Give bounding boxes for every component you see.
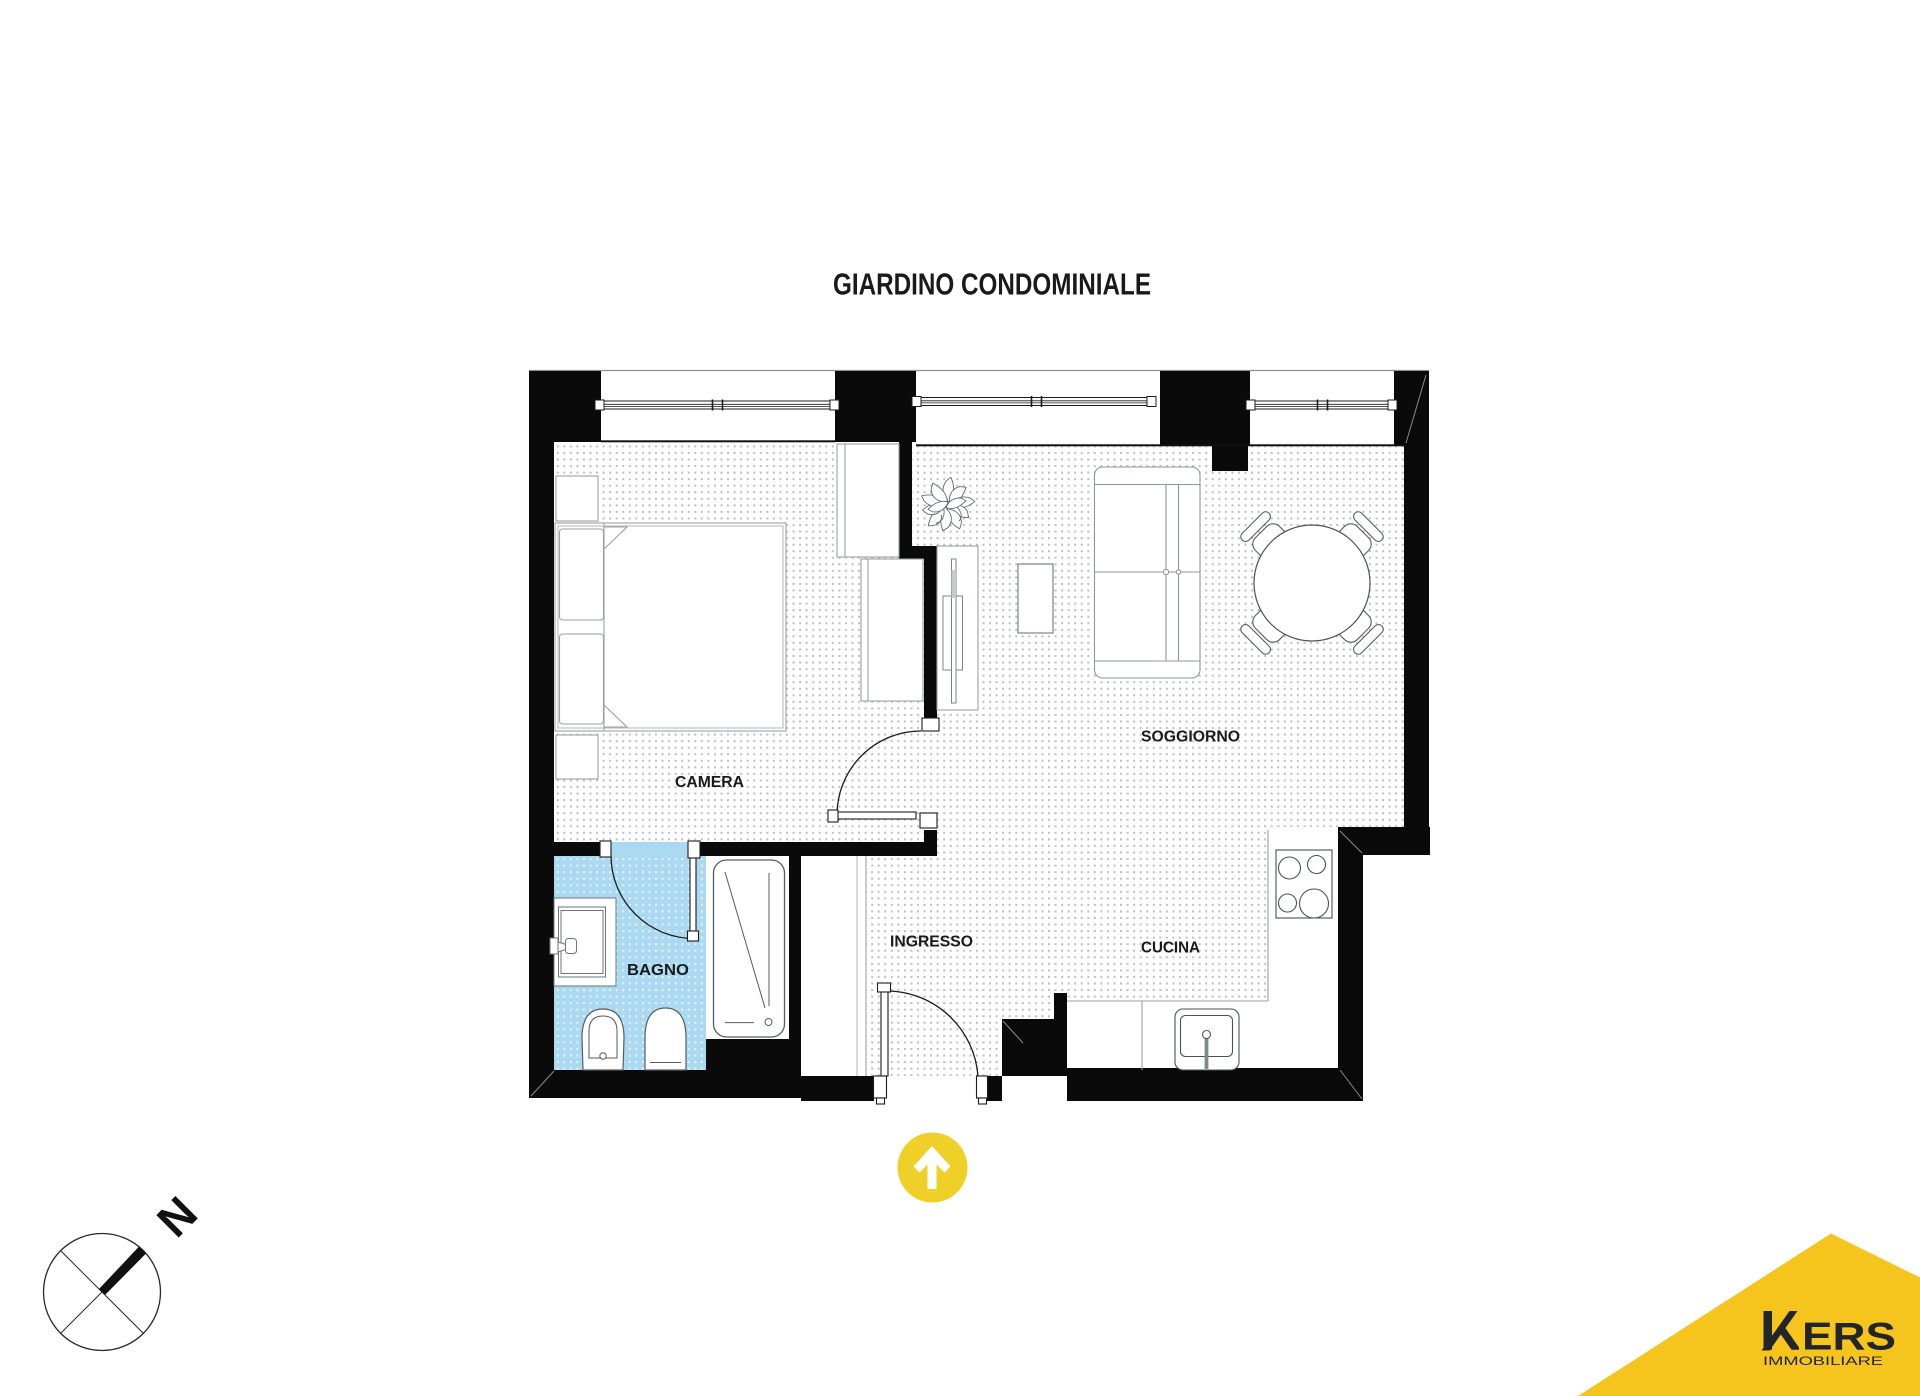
svg-text:CUCINA: CUCINA: [1141, 940, 1200, 957]
svg-text:INGRESSO: INGRESSO: [890, 934, 973, 951]
svg-text:GIARDINO CONDOMINIALE: GIARDINO CONDOMINIALE: [833, 267, 1151, 302]
svg-text:IMMOBILIARE: IMMOBILIARE: [1763, 1356, 1884, 1368]
svg-text:BAGNO: BAGNO: [627, 962, 689, 979]
svg-text:SOGGIORNO: SOGGIORNO: [1141, 729, 1240, 746]
svg-text:ERS: ERS: [1802, 1316, 1896, 1359]
svg-text:CAMERA: CAMERA: [675, 774, 744, 791]
